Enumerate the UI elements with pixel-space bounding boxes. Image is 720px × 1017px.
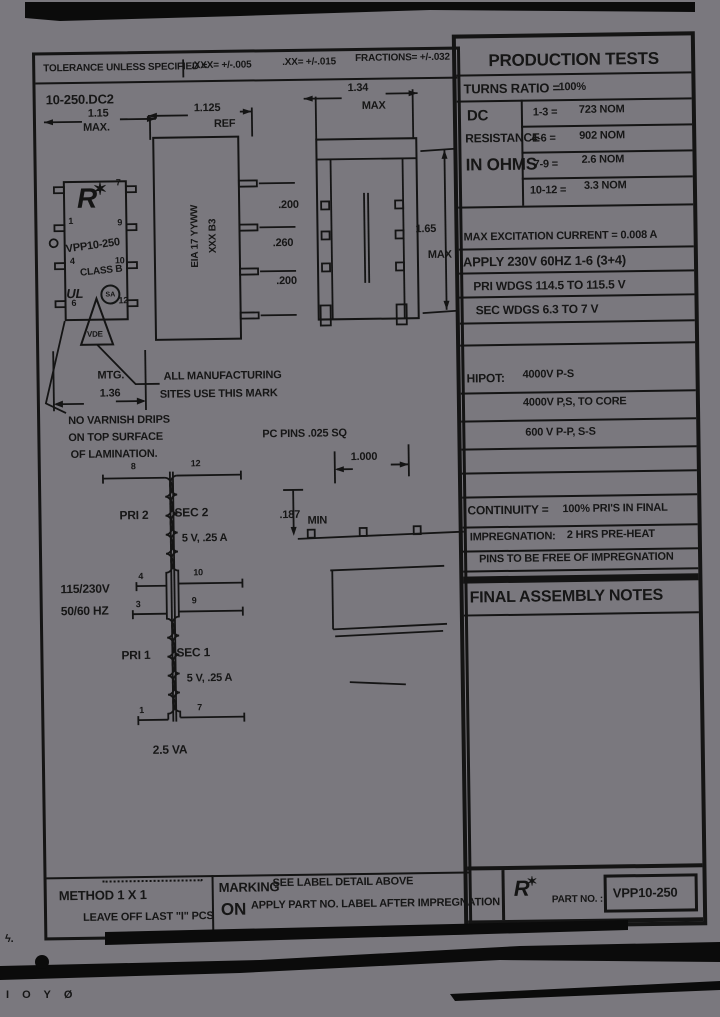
- sheet-bottom-shadow: [105, 920, 628, 945]
- bottom-scan-band: [0, 942, 720, 980]
- bottom-streak: [450, 981, 720, 1001]
- scan-blob: [35, 955, 49, 969]
- scan-artifacts: [0, 0, 720, 1012]
- corner-noise-glyphs: Ι Ο Υ Ø: [6, 990, 77, 1001]
- edge-noise-glyph: ϟ.: [5, 934, 13, 945]
- top-scan-band: [25, 2, 695, 21]
